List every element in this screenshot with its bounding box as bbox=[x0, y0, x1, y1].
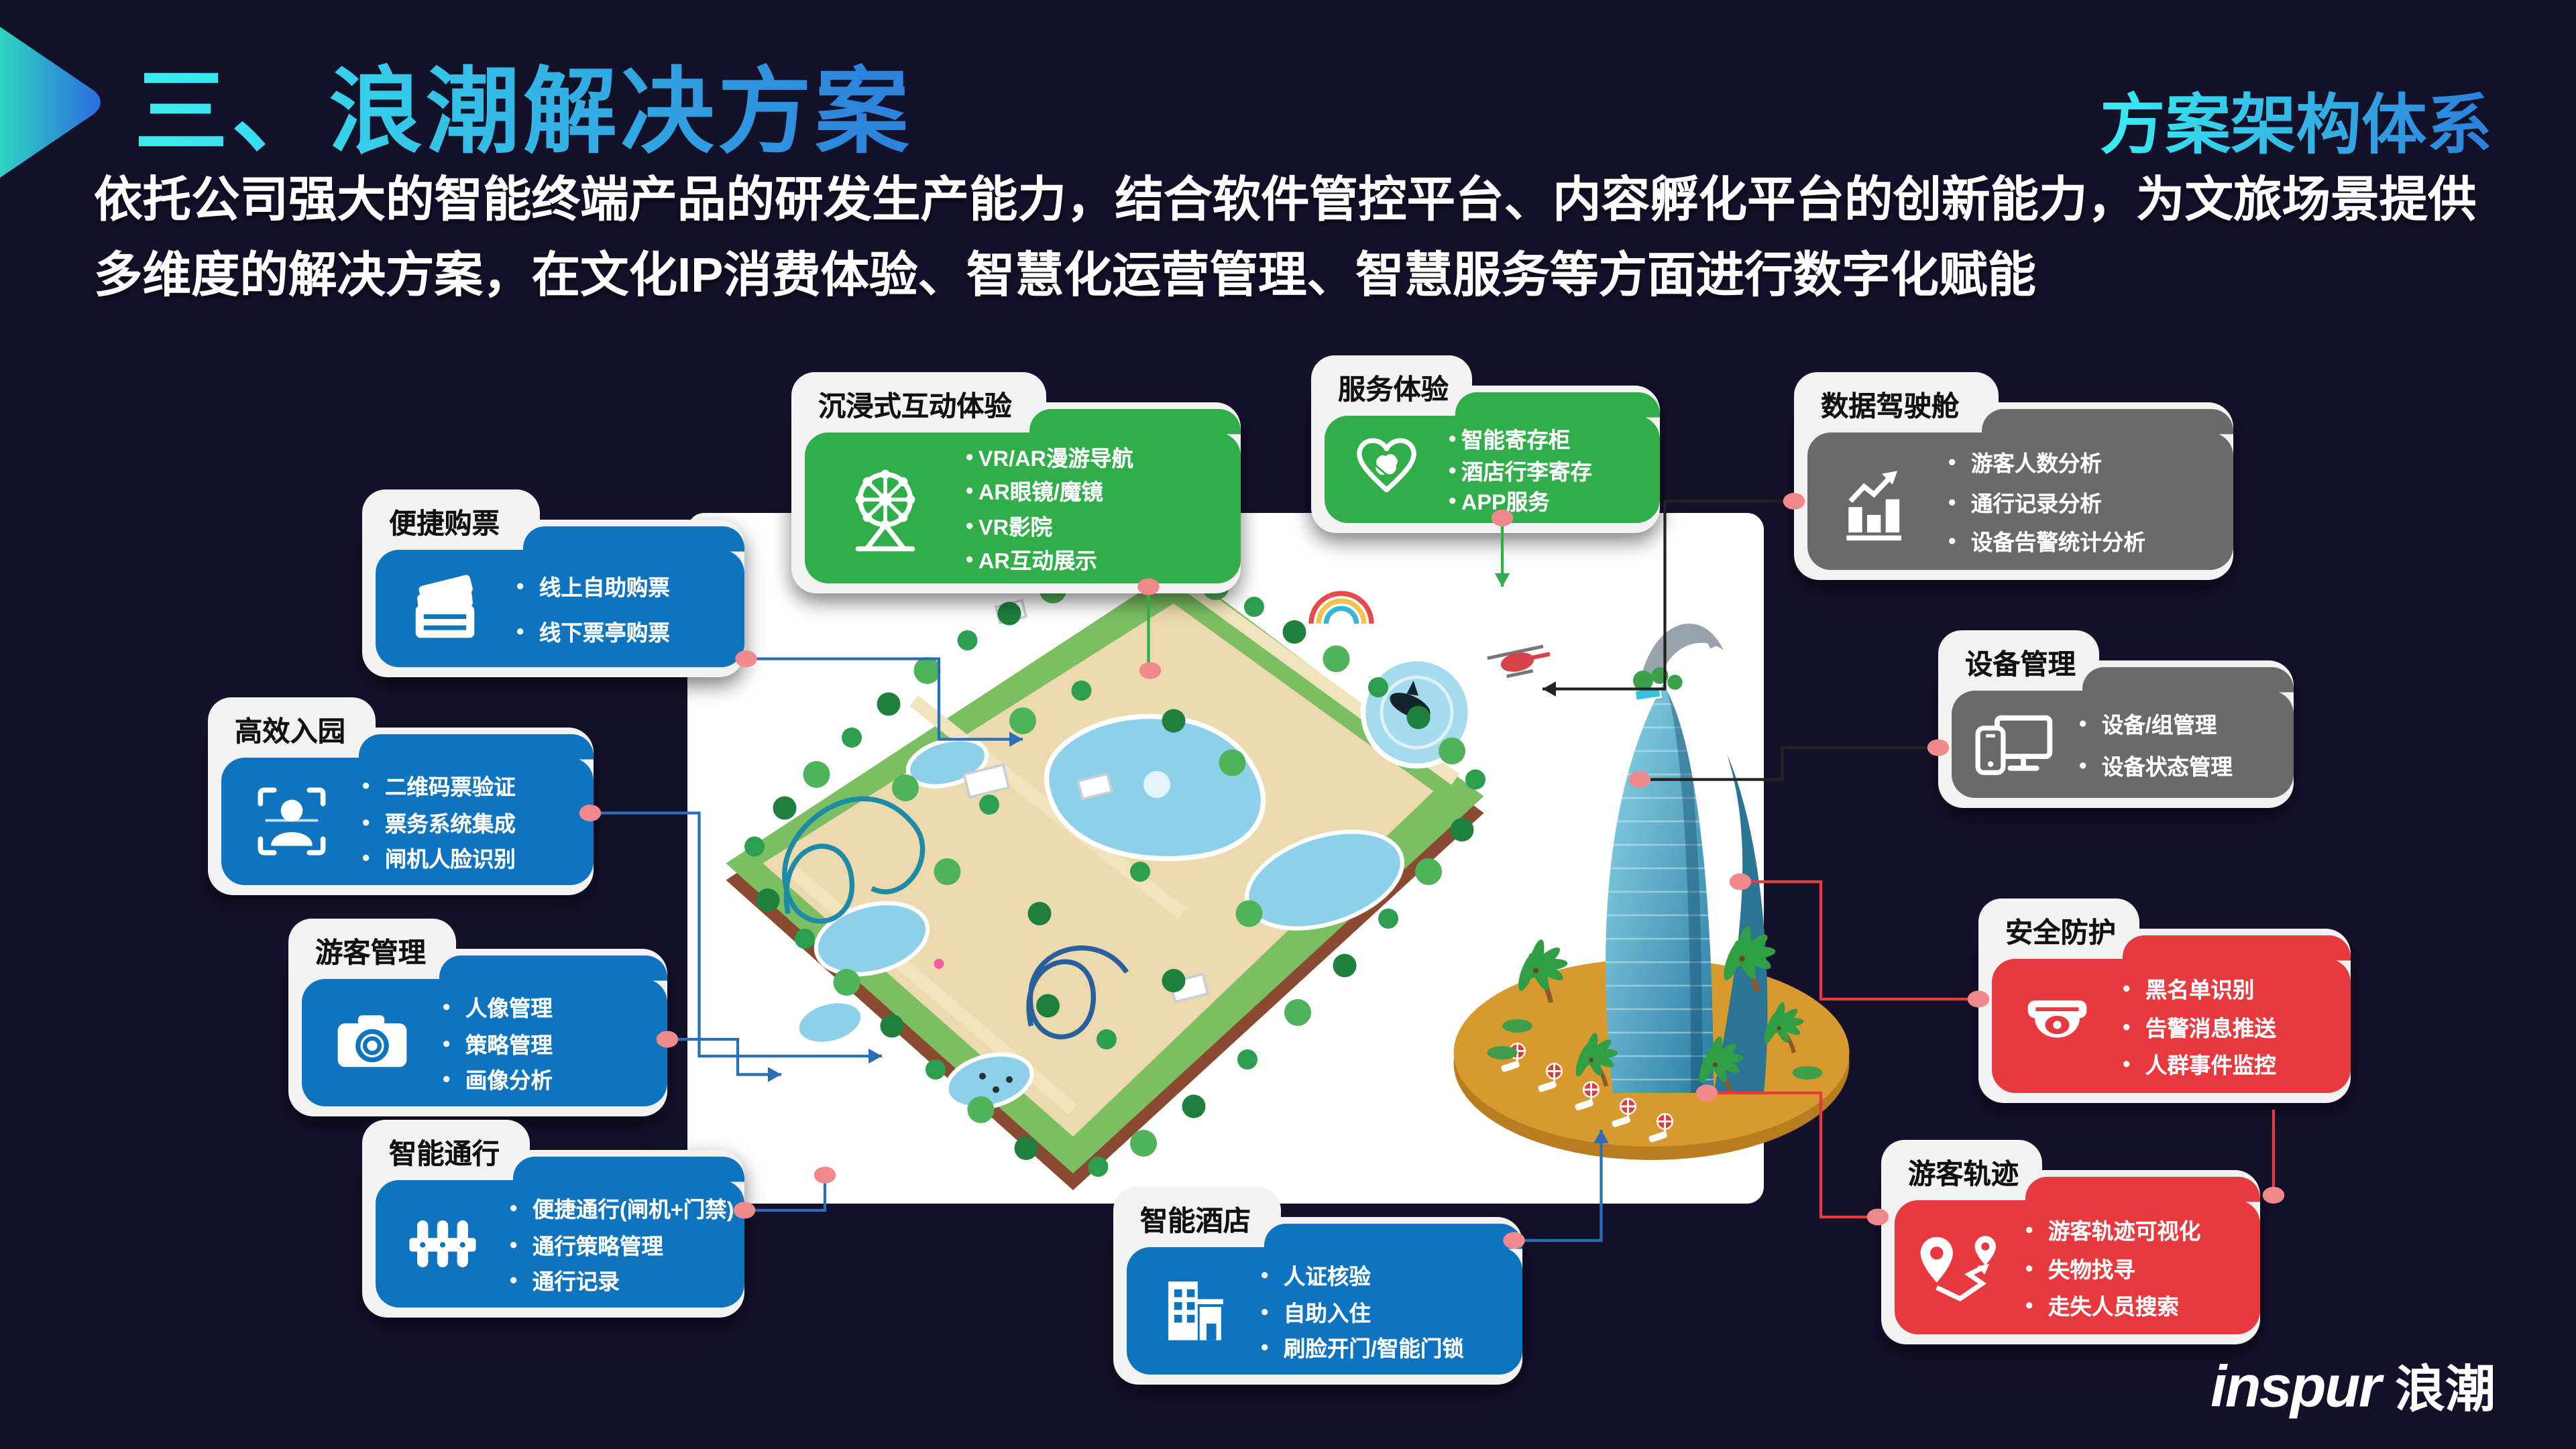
callout-item-text: 人像管理 bbox=[465, 990, 553, 1023]
callout-item-text: 二维码票验证 bbox=[385, 769, 516, 801]
callout-step bbox=[1264, 1224, 1522, 1249]
description-line: 依托公司强大的智能终端产品的研发生产能力，结合软件管控平台、内容孵化平台的创新能… bbox=[94, 164, 2542, 240]
callout-tab: 安全防护 bbox=[1978, 899, 2139, 959]
callout-tab: 高效入园 bbox=[208, 697, 376, 758]
callout-item-text: 设备/组管理 bbox=[2102, 707, 2217, 740]
callout-security: 安全防护 黑名单识别告警消息推送人群事件监控 bbox=[1978, 899, 2351, 1103]
callout-body: 智能寄存柜酒店行李寄存APP服务 bbox=[1325, 416, 1660, 523]
callout-item-text: 自助入住 bbox=[1284, 1295, 1371, 1327]
callout-step bbox=[513, 1157, 744, 1182]
callout-item-text: 线下票亭购票 bbox=[539, 616, 670, 648]
callout-title: 高效入园 bbox=[208, 697, 376, 750]
callout-body: 二维码票验证票务系统集成闸机人脸识别 bbox=[221, 758, 594, 885]
callout-item: 画像分析 bbox=[443, 1063, 657, 1096]
callout-item: 票务系统集成 bbox=[362, 805, 583, 837]
callout-title: 游客轨迹 bbox=[1881, 1140, 2042, 1192]
callout-visitor-track: 游客轨迹 游客轨迹可视化失物找寻走失人员搜索 bbox=[1881, 1140, 2260, 1344]
callout-item-list: 人像管理策略管理画像分析 bbox=[443, 979, 667, 1106]
callout-ticketing: 便捷购票 线上自助购票线下票亭购票 bbox=[362, 489, 744, 677]
callout-visitor-mgmt: 游客管理 人像管理策略管理画像分析 bbox=[288, 919, 667, 1116]
callout-step bbox=[359, 734, 594, 760]
callout-item: 策略管理 bbox=[443, 1027, 657, 1059]
callout-body: 线上自助购票线下票亭购票 bbox=[376, 550, 744, 667]
callout-item-text: 策略管理 bbox=[465, 1027, 553, 1059]
callout-item-text: 失物找寻 bbox=[2048, 1251, 2135, 1283]
callout-item-text: 便捷通行(闸机+门禁) bbox=[533, 1192, 734, 1224]
callout-body: 设备/组管理设备状态管理 bbox=[1952, 691, 2294, 798]
callout-title: 服务体验 bbox=[1311, 355, 1472, 408]
tickets-icon bbox=[376, 550, 516, 667]
callout-body: 人像管理策略管理画像分析 bbox=[302, 979, 667, 1106]
face-scan-icon bbox=[221, 758, 362, 885]
devices-icon bbox=[1952, 691, 2079, 798]
callout-item: 告警消息推送 bbox=[2123, 1010, 2341, 1042]
callout-item: 线上自助购票 bbox=[516, 570, 734, 602]
callout-item: 闸机人脸识别 bbox=[362, 842, 583, 874]
callout-item: 人群事件监控 bbox=[2123, 1048, 2341, 1080]
callout-title: 智能通行 bbox=[362, 1120, 530, 1172]
callout-tab: 数据驾驶舱 bbox=[1794, 372, 1999, 432]
callout-entry: 高效入园 二维码票验证票务系统集成闸机人脸识别 bbox=[208, 697, 594, 895]
callout-item: 通行记录分析 bbox=[1948, 485, 2223, 518]
description-line: 多维度的解决方案，在文化IP消费体验、智慧化运营管理、智慧服务等方面进行数字化赋… bbox=[94, 240, 2542, 316]
callout-item: 自助入住 bbox=[1261, 1295, 1512, 1327]
callout-title: 设备管理 bbox=[1938, 630, 2099, 683]
callout-item: 人像管理 bbox=[443, 990, 657, 1023]
callout-tab: 便捷购票 bbox=[362, 489, 540, 550]
callout-tab: 智能酒店 bbox=[1113, 1187, 1281, 1247]
callout-item: 设备/组管理 bbox=[2079, 707, 2284, 740]
callout-item: 智能寄存柜 bbox=[1449, 422, 1650, 454]
bar-chart-icon bbox=[1807, 432, 1948, 570]
callout-title: 数据驾驶舱 bbox=[1794, 372, 1999, 424]
callout-item: VR/AR漫游导航 bbox=[966, 441, 1231, 473]
callout-item-text: 票务系统集成 bbox=[385, 805, 516, 837]
callout-tab: 服务体验 bbox=[1311, 355, 1472, 416]
page-title: 三、浪潮解决方案 bbox=[134, 37, 912, 173]
callout-item: 游客轨迹可视化 bbox=[2025, 1213, 2250, 1245]
ferris-wheel-icon bbox=[805, 432, 966, 583]
callout-title: 游客管理 bbox=[288, 919, 456, 971]
callout-item-text: 通行记录 bbox=[533, 1265, 620, 1297]
callout-tab: 设备管理 bbox=[1938, 630, 2099, 691]
inspur-logo-latin: inspur bbox=[2210, 1355, 2379, 1422]
callout-item-text: 游客轨迹可视化 bbox=[2048, 1213, 2201, 1245]
callout-item: 设备告警统计分析 bbox=[1948, 524, 2223, 557]
callout-item-text: 人证核验 bbox=[1284, 1259, 1371, 1291]
callout-item-list: 黑名单识别告警消息推送人群事件监控 bbox=[2123, 959, 2351, 1093]
callout-item-text: 设备状态管理 bbox=[2102, 750, 2233, 782]
callout-item-list: 智能寄存柜酒店行李寄存APP服务 bbox=[1449, 416, 1660, 523]
callout-item-text: 告警消息推送 bbox=[2145, 1010, 2276, 1042]
callout-item-text: 游客人数分析 bbox=[1971, 447, 2102, 479]
callout-item: 酒店行李寄存 bbox=[1449, 454, 1650, 485]
callout-item-text: 刷脸开门/智能门锁 bbox=[1284, 1332, 1464, 1364]
callout-step bbox=[523, 526, 744, 552]
callout-item: 通行策略管理 bbox=[510, 1228, 734, 1260]
callout-item: 刷脸开门/智能门锁 bbox=[1261, 1332, 1512, 1364]
callout-immersive: 沉浸式互动体验 VR/AR漫游导航AR眼镜/魔镜VR影院AR互动展示 bbox=[791, 372, 1241, 593]
callout-body: 黑名单识别告警消息推送人群事件监控 bbox=[1992, 959, 2351, 1093]
callout-item: VR影院 bbox=[966, 509, 1231, 541]
callout-item-list: 线上自助购票线下票亭购票 bbox=[516, 550, 744, 667]
handshake-icon bbox=[1325, 416, 1449, 523]
camera-icon bbox=[302, 979, 443, 1106]
callout-service: 服务体验 智能寄存柜酒店行李寄存APP服务 bbox=[1311, 355, 1660, 533]
callout-item-text: 黑名单识别 bbox=[2145, 972, 2255, 1004]
callout-body: 游客轨迹可视化失物找寻走失人员搜索 bbox=[1895, 1200, 2260, 1334]
callout-step bbox=[439, 955, 667, 981]
callout-item: 二维码票验证 bbox=[362, 769, 583, 801]
callout-item-text: 闸机人脸识别 bbox=[385, 842, 516, 874]
callout-smart-access: 智能通行 便捷通行(闸机+门禁)通行策略管理通行记录 bbox=[362, 1120, 744, 1318]
callout-item-text: 设备告警统计分析 bbox=[1971, 524, 2145, 557]
callout-device-mgmt: 设备管理 设备/组管理设备状态管理 bbox=[1938, 630, 2294, 808]
callout-item-text: AR眼镜/魔镜 bbox=[978, 475, 1103, 507]
callout-item: APP服务 bbox=[1449, 485, 1650, 516]
callout-item: AR互动展示 bbox=[966, 542, 1231, 575]
callout-step bbox=[2082, 667, 2294, 693]
callout-item-list: VR/AR漫游导航AR眼镜/魔镜VR影院AR互动展示 bbox=[966, 432, 1241, 583]
callout-item-text: 线上自助购票 bbox=[539, 570, 670, 602]
callout-tab: 游客管理 bbox=[288, 919, 456, 979]
callout-title: 便捷购票 bbox=[362, 489, 540, 542]
callout-item-text: 人群事件监控 bbox=[2145, 1048, 2276, 1080]
callout-tab: 沉浸式互动体验 bbox=[791, 372, 1046, 432]
callout-body: 游客人数分析通行记录分析设备告警统计分析 bbox=[1807, 432, 2233, 570]
callout-data-cockpit: 数据驾驶舱 游客人数分析通行记录分析设备告警统计分析 bbox=[1794, 372, 2233, 580]
callout-step bbox=[2123, 935, 2351, 961]
callout-body: 便捷通行(闸机+门禁)通行策略管理通行记录 bbox=[376, 1180, 744, 1308]
slide-description: 依托公司强大的智能终端产品的研发生产能力，结合软件管控平台、内容孵化平台的创新能… bbox=[94, 164, 2542, 315]
callout-item-list: 便捷通行(闸机+门禁)通行策略管理通行记录 bbox=[510, 1180, 744, 1308]
callout-item: 人证核验 bbox=[1261, 1259, 1512, 1291]
callout-item-list: 游客轨迹可视化失物找寻走失人员搜索 bbox=[2025, 1200, 2260, 1334]
callout-title: 智能酒店 bbox=[1113, 1187, 1281, 1239]
callout-item: 线下票亭购票 bbox=[516, 616, 734, 648]
callout-item-list: 人证核验自助入住刷脸开门/智能门锁 bbox=[1261, 1247, 1522, 1375]
callout-item-text: 画像分析 bbox=[465, 1063, 553, 1096]
callout-item-text: AR互动展示 bbox=[978, 542, 1097, 575]
cctv-icon bbox=[1992, 959, 2123, 1093]
hotel-icon bbox=[1127, 1247, 1261, 1375]
callout-body: VR/AR漫游导航AR眼镜/魔镜VR影院AR互动展示 bbox=[805, 432, 1241, 583]
callout-item-text: 智能寄存柜 bbox=[1461, 422, 1571, 454]
callout-item: 设备状态管理 bbox=[2079, 750, 2284, 782]
callout-item-list: 二维码票验证票务系统集成闸机人脸识别 bbox=[362, 758, 594, 885]
callout-item-text: VR影院 bbox=[978, 509, 1052, 541]
callout-item: AR眼镜/魔镜 bbox=[966, 475, 1231, 507]
callout-title: 沉浸式互动体验 bbox=[791, 372, 1046, 424]
callout-step bbox=[1455, 392, 1660, 418]
callout-item-text: 走失人员搜索 bbox=[2048, 1289, 2179, 1322]
callout-step bbox=[2025, 1177, 2260, 1202]
callout-item-text: 酒店行李寄存 bbox=[1461, 454, 1592, 485]
gate-icon bbox=[376, 1180, 510, 1308]
callout-title: 安全防护 bbox=[1978, 899, 2139, 951]
callout-item: 走失人员搜索 bbox=[2025, 1289, 2250, 1322]
callout-item-list: 设备/组管理设备状态管理 bbox=[2079, 691, 2294, 798]
corner-label: 方案架构体系 bbox=[2100, 74, 2492, 168]
callout-item-text: VR/AR漫游导航 bbox=[978, 441, 1133, 473]
route-icon bbox=[1895, 1200, 2025, 1334]
callout-item: 失物找寻 bbox=[2025, 1251, 2250, 1283]
callout-item-text: APP服务 bbox=[1461, 485, 1550, 516]
inspur-logo-cjk: 浪潮 bbox=[2395, 1348, 2496, 1422]
callout-item: 通行记录 bbox=[510, 1265, 734, 1297]
callout-item-list: 游客人数分析通行记录分析设备告警统计分析 bbox=[1948, 432, 2233, 570]
callout-item: 黑名单识别 bbox=[2123, 972, 2341, 1004]
callout-smart-hotel: 智能酒店 人证核验自助入住刷脸开门/智能门锁 bbox=[1113, 1187, 1522, 1385]
callout-step bbox=[1982, 409, 2233, 434]
callout-tab: 游客轨迹 bbox=[1881, 1140, 2042, 1200]
callout-tab: 智能通行 bbox=[362, 1120, 530, 1180]
callout-item: 便捷通行(闸机+门禁) bbox=[510, 1192, 734, 1224]
callout-step bbox=[1029, 409, 1241, 434]
callout-item-text: 通行策略管理 bbox=[533, 1228, 663, 1260]
callout-item: 游客人数分析 bbox=[1948, 447, 2223, 479]
inspur-logo: inspur 浪潮 bbox=[2210, 1348, 2496, 1422]
slide: 三、浪潮解决方案 方案架构体系 依托公司强大的智能终端产品的研发生产能力，结合软… bbox=[0, 0, 2576, 1449]
callout-body: 人证核验自助入住刷脸开门/智能门锁 bbox=[1127, 1247, 1522, 1375]
callout-item-text: 通行记录分析 bbox=[1971, 485, 2102, 518]
